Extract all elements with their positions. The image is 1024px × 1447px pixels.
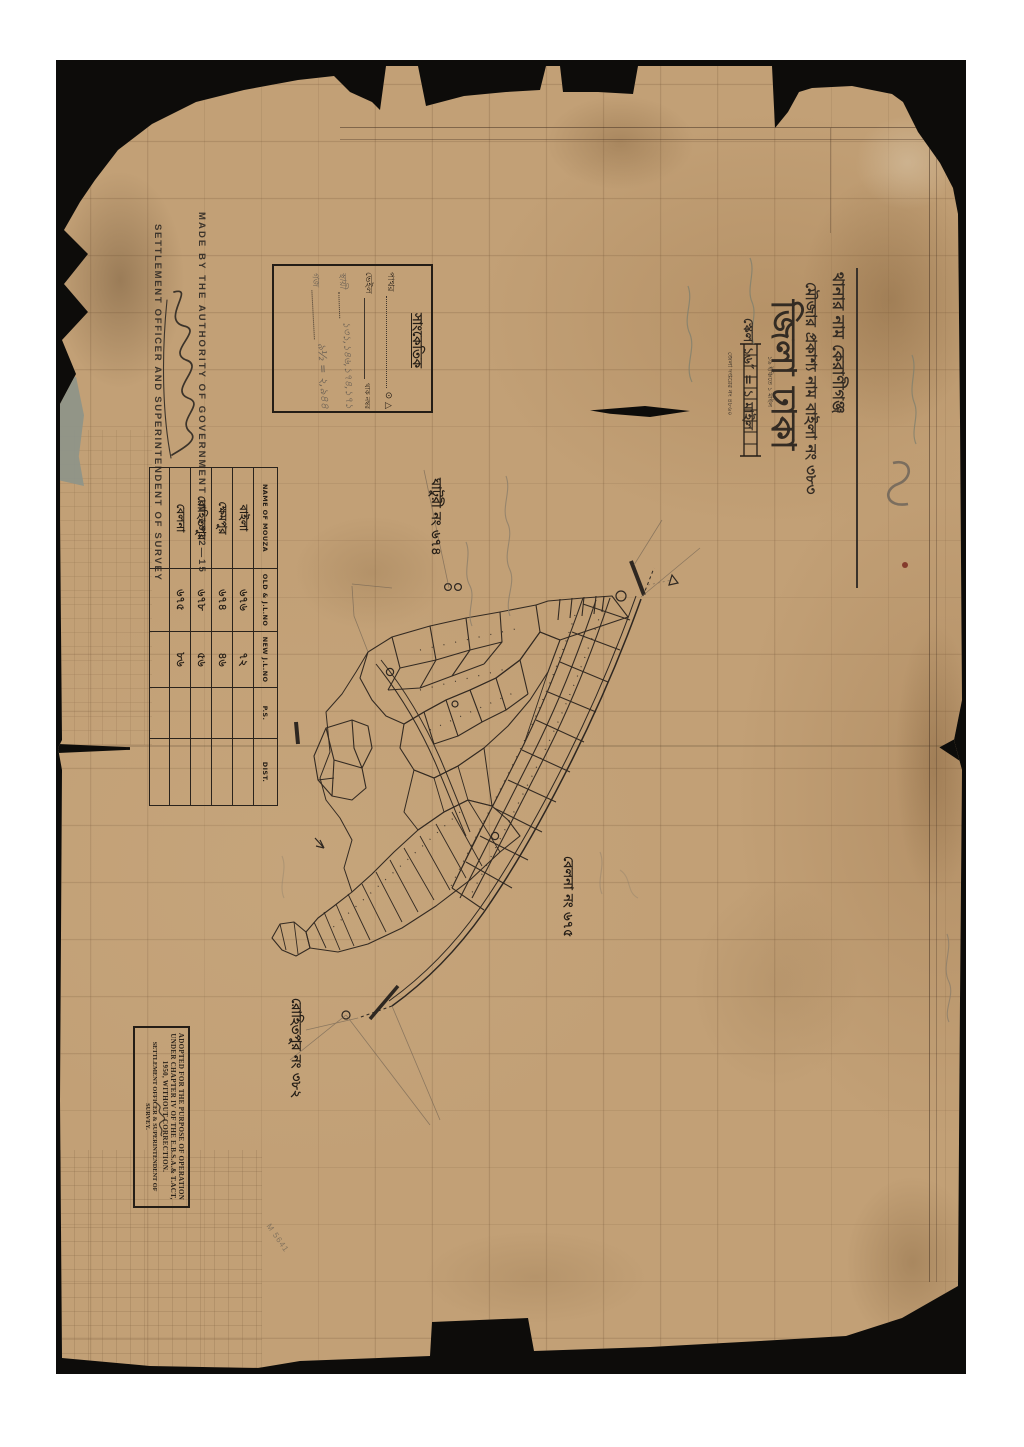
adoption-stamp-content: ADOPTED FOR THE PURPOSE OF OPERATION UND… [135, 1028, 187, 1205]
mouza-table: NAME OF MOUZA OLD & J.L.NO NEW J.L.NO P.… [149, 467, 278, 806]
stamp-signature [149, 1098, 171, 1138]
scale-text: স্কেল ১৬″ = ১ মাইল [736, 318, 757, 430]
district-title: জিলা ঢাকা [752, 300, 809, 450]
mouza-name-cell: বাইলা [233, 468, 254, 569]
table-header-row: NAME OF MOUZA OLD & J.L.NO NEW J.L.NO P.… [254, 468, 278, 806]
new-jl-cell: ৫৬ [191, 632, 212, 688]
legend-label: গজ [307, 272, 323, 287]
mouza-name-cell: ক্ষেমপুর [212, 468, 233, 569]
survey-rays [290, 470, 700, 1125]
empty-cell [150, 569, 170, 632]
legend-row: পাথর ⊙ △ [383, 272, 398, 409]
neighbour-mouza-label: রোহিতপুর নং ৩৮২ [284, 998, 305, 1098]
old-jl-cell: ৬৭৬ [233, 569, 254, 632]
mouza-boundary-line [296, 561, 654, 1019]
new-jl-cell: ৭২ [233, 632, 254, 688]
legend-handwritten-value: ৯½ = ২,৯৪৪ [311, 342, 333, 409]
ps-cell [170, 688, 191, 739]
legend-label: স্থায়ী [335, 272, 351, 289]
pencil-scribbles [282, 476, 951, 1022]
red-ink-spot [902, 562, 908, 568]
ps-cell [212, 688, 233, 739]
legend-handwritten-value: ১৩১,১৪৬,১৭৪,১৭১ [336, 321, 356, 409]
scale-bar-note: ১৬ ইঞ্চিতে ১ মাইল [764, 356, 775, 407]
old-jl-cell: ৬৭৮ [191, 569, 212, 632]
dist-cell [170, 739, 191, 806]
col-header-new-jl: NEW J.L.NO [254, 632, 278, 688]
dist-cell [233, 739, 254, 806]
mouza-name-cell: রোহিতপুর [191, 468, 212, 569]
dist-cell [191, 739, 212, 806]
neighbour-mouza-label: বেলনা নং ৬৭৫ [556, 856, 577, 937]
new-jl-cell: ৪৬ [212, 632, 233, 688]
empty-cell [150, 688, 170, 739]
pencil-s-mark [888, 462, 908, 504]
legend-title: সাংকেতিক [405, 272, 426, 409]
legend-symbols: ⊙ △ [383, 392, 393, 409]
mouza-table-wrap: NAME OF MOUZA OLD & J.L.NO NEW J.L.NO P.… [150, 467, 278, 800]
adoption-stamp-box: ADOPTED FOR THE PURPOSE OF OPERATION UND… [133, 1026, 190, 1208]
old-jl-cell: ৬৭৫ [170, 569, 191, 632]
empty-cell [150, 468, 170, 569]
ps-cell [191, 688, 212, 739]
scanned-map-page: MADE BY THE AUTHORITY OF GOVERNMENT IN 1… [0, 0, 1024, 1447]
col-header-old-jl: OLD & J.L.NO [254, 569, 278, 632]
dotted-leader [386, 296, 388, 388]
empty-cell [150, 739, 170, 806]
dist-cell [212, 739, 233, 806]
col-header-ps: P.S. [254, 688, 278, 739]
ps-cell [233, 688, 254, 739]
col-header-name: NAME OF MOUZA [254, 468, 278, 569]
legend-handwritten-row: গজ ৯½ = ২,৯৪৪ [307, 272, 333, 410]
legend-sublabel: থাক নম্বর [361, 383, 373, 409]
legend-box: সাংকেতিক পাথর ⊙ △ ভেইল থাক নম্বর স্থায়ী… [272, 264, 433, 413]
stamp-line: ADOPTED FOR THE PURPOSE OF OPERATION [177, 1031, 185, 1202]
legend-handwritten-row: স্থায়ী ১৩১,১৪৬,১৭৪,১৭১ [335, 272, 357, 410]
neighbour-mouza-label: ঘাটুরী নং ৬৭৪ [424, 478, 445, 556]
table-row-empty [150, 468, 170, 806]
legend-content: সাংকেতিক পাথর ⊙ △ ভেইল থাক নম্বর স্থায়ী… [274, 266, 430, 415]
legend-label: পাথর [383, 272, 398, 292]
empty-cell [150, 632, 170, 688]
officer-signature [164, 291, 194, 458]
col-header-dist: DIST. [254, 739, 278, 806]
solid-leader [364, 298, 366, 379]
old-jl-cell: ৬৭৪ [212, 569, 233, 632]
table-row: বেলনা ৬৭৫ ৮৬ [170, 468, 191, 806]
legend-row: ভেইল থাক নম্বর [361, 272, 376, 409]
dotted-leader [311, 290, 316, 339]
thana-name-line: থানার নাম কেরাণীগঞ্জ [824, 272, 851, 414]
table-row: ক্ষেমপুর ৬৭৪ ৪৬ [212, 468, 233, 806]
legend-label: ভেইল [361, 272, 376, 294]
table-row: বাইলা ৬৭৬ ৭২ [233, 468, 254, 806]
registry-note: জেলা দপ্তরের নং ৪৮৬০ [724, 352, 735, 415]
dotted-leader [338, 293, 341, 318]
new-jl-cell: ৮৬ [170, 632, 191, 688]
mouza-name-cell: বেলনা [170, 468, 191, 569]
table-row: রোহিতপুর ৬৭৮ ৫৬ [191, 468, 212, 806]
map-sheet: MADE BY THE AUTHORITY OF GOVERNMENT IN 1… [0, 0, 1024, 1447]
